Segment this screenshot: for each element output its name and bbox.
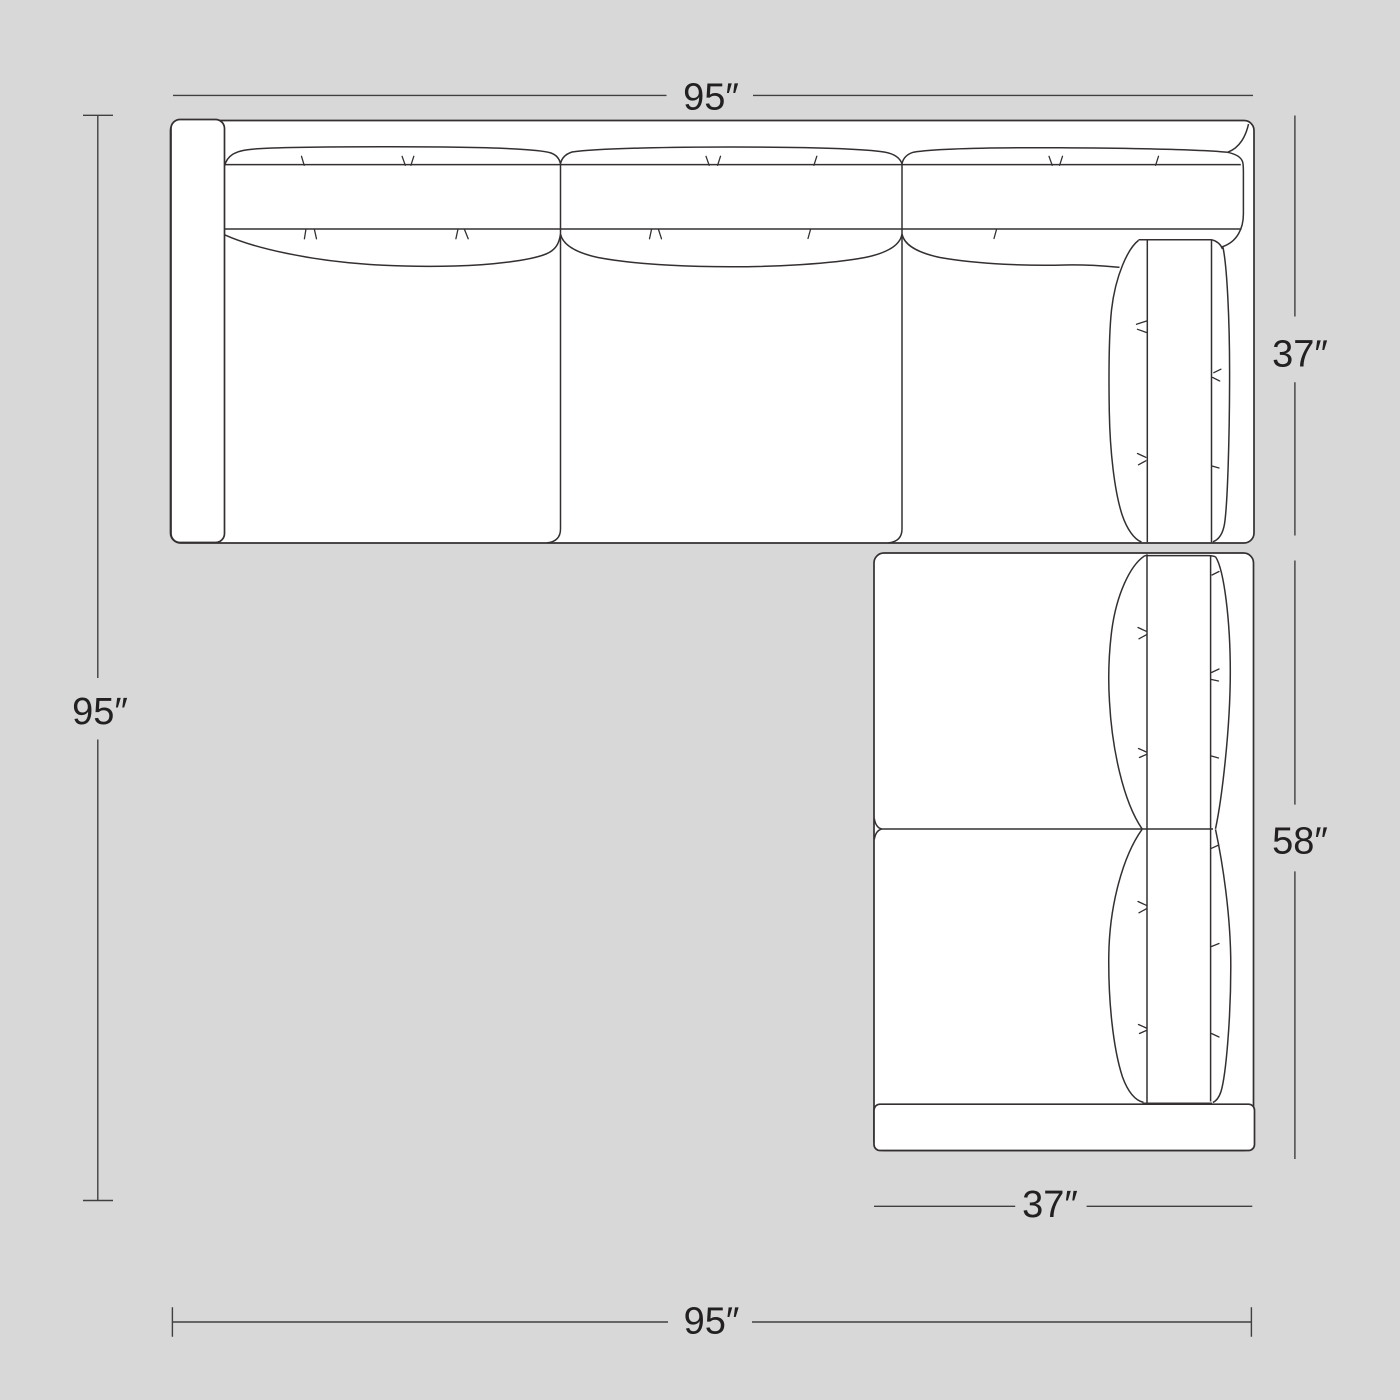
svg-text:58″: 58″ bbox=[1272, 821, 1328, 863]
svg-text:95″: 95″ bbox=[684, 1301, 740, 1343]
svg-text:37″: 37″ bbox=[1272, 333, 1328, 375]
svg-text:37″: 37″ bbox=[1022, 1184, 1078, 1226]
svg-text:95″: 95″ bbox=[683, 77, 739, 119]
svg-text:95″: 95″ bbox=[72, 691, 128, 733]
